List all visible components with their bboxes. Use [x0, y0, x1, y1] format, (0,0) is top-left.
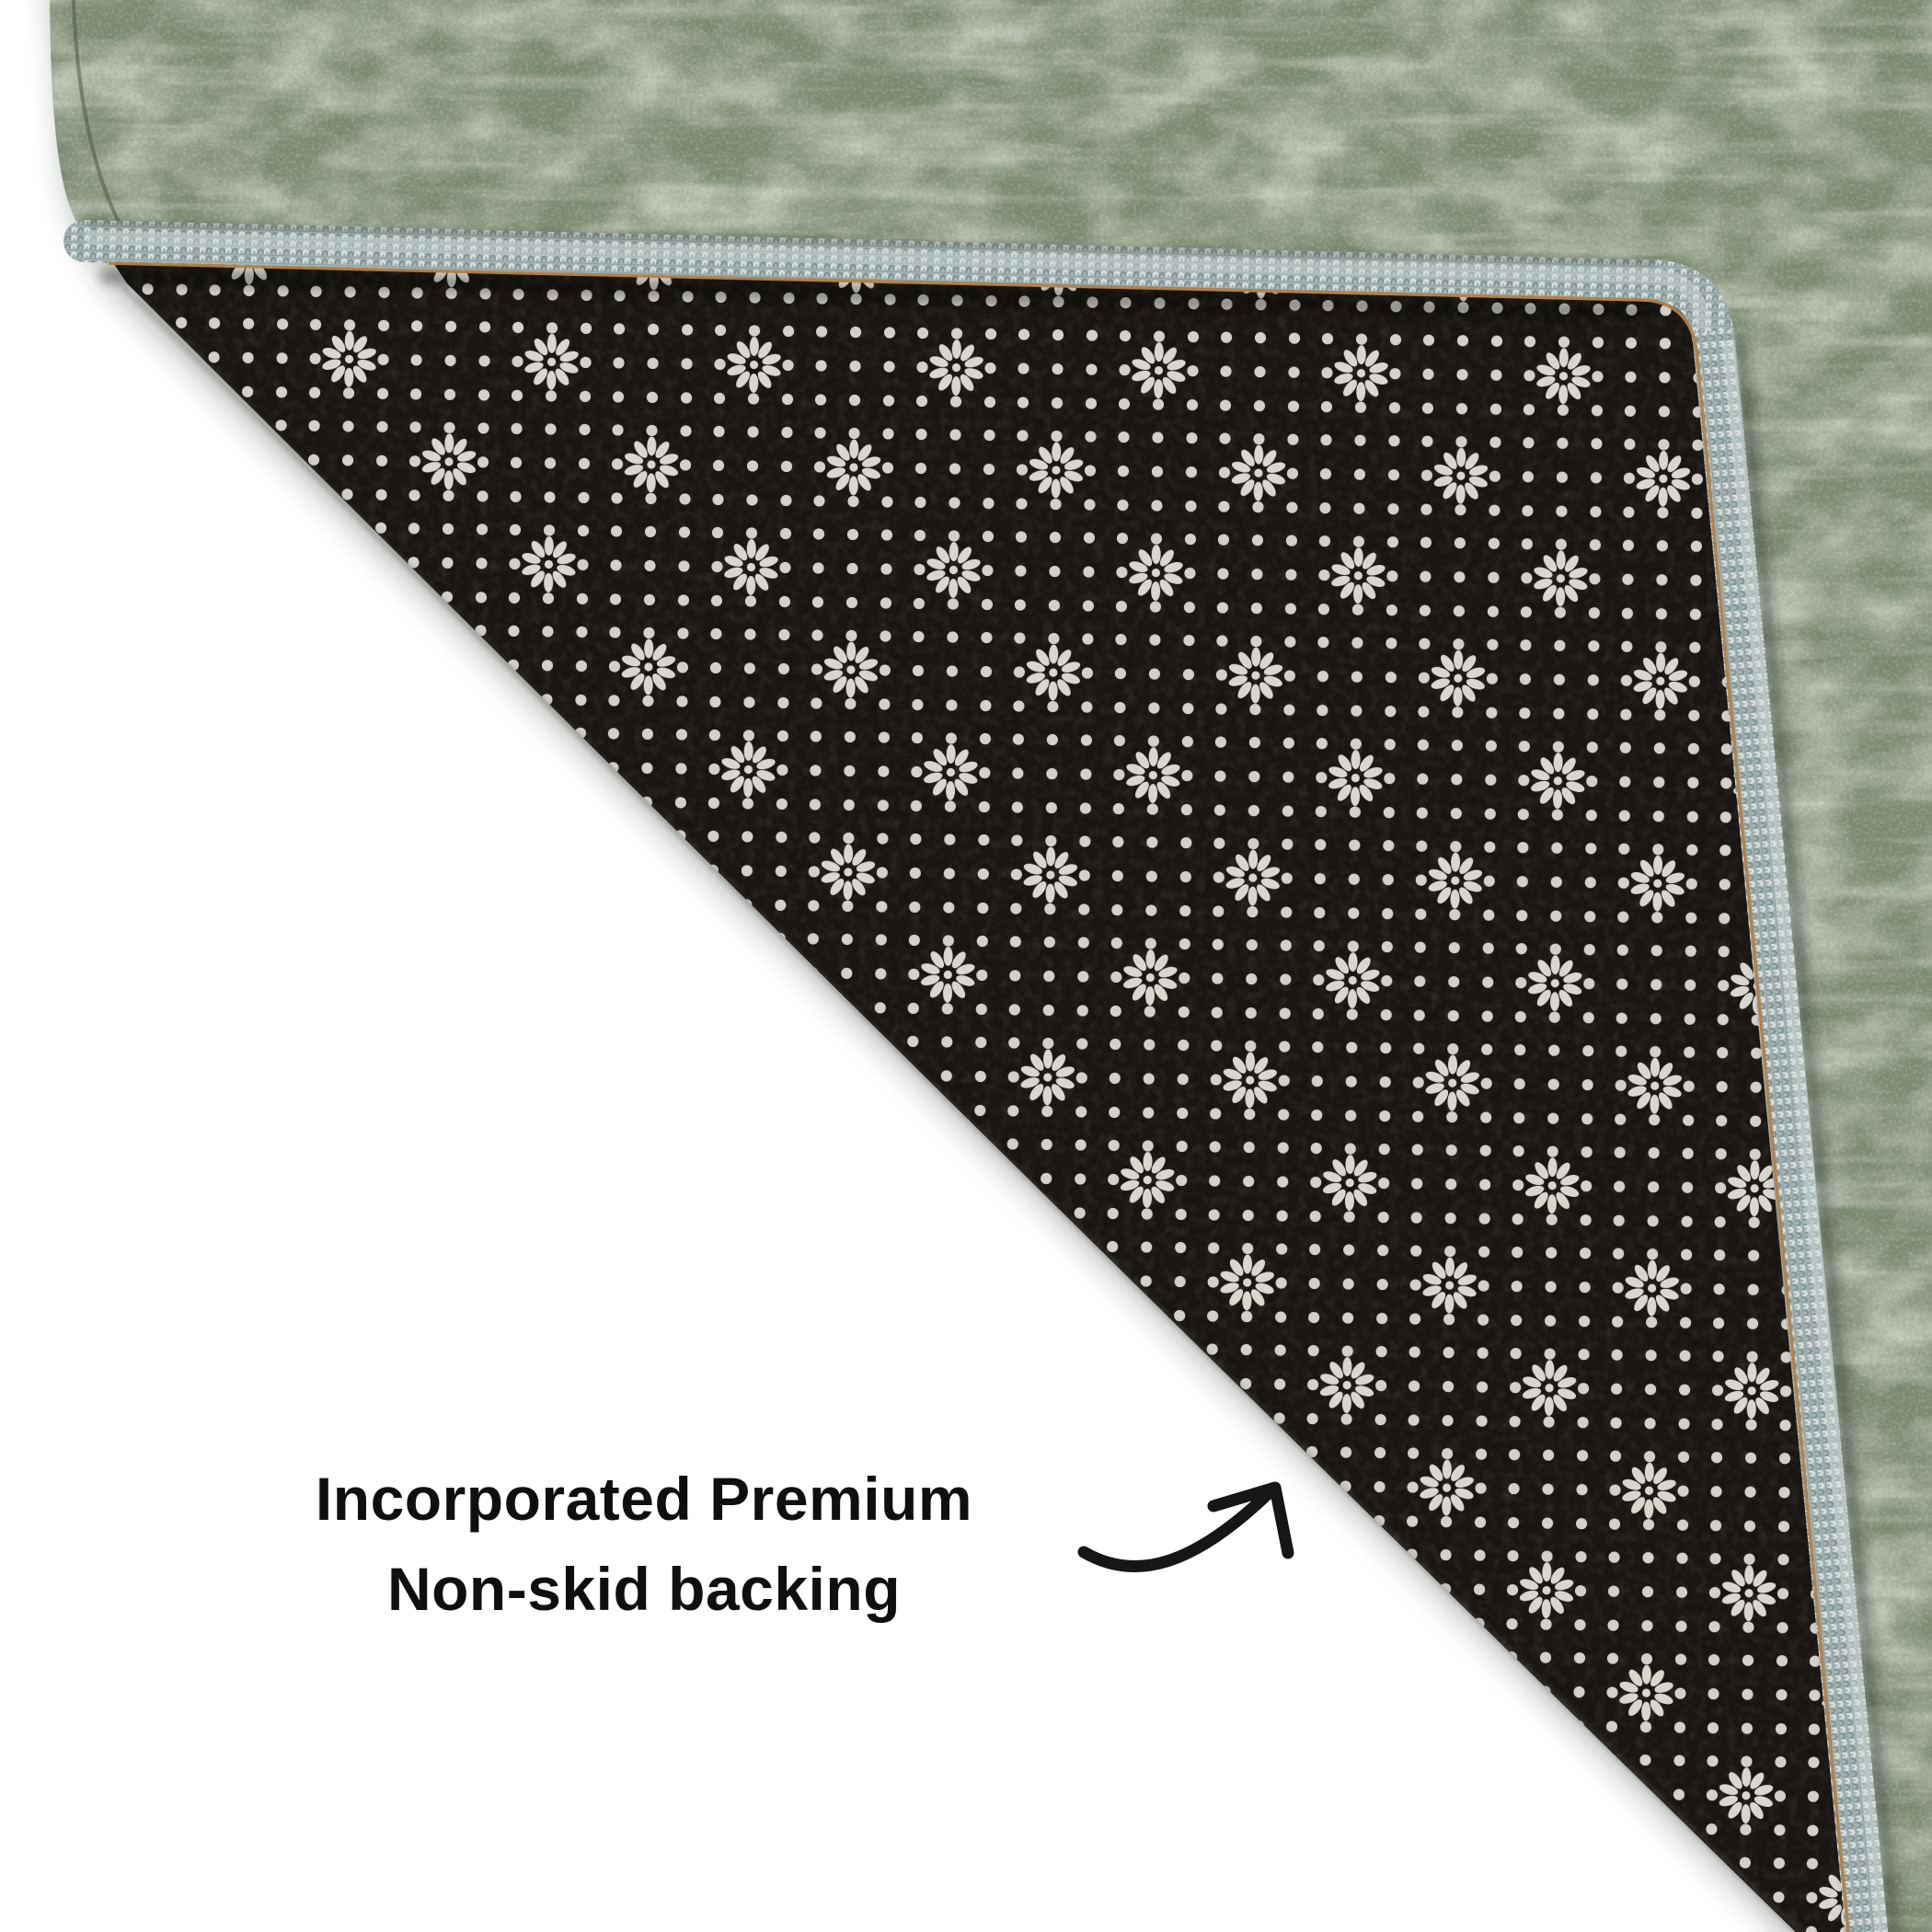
annotation-line-1: Incorporated Premium	[316, 1465, 972, 1533]
rug-product-photo: Incorporated Premium Non-skid backing	[0, 0, 1932, 1932]
annotation-line-2: Non-skid backing	[387, 1555, 901, 1623]
